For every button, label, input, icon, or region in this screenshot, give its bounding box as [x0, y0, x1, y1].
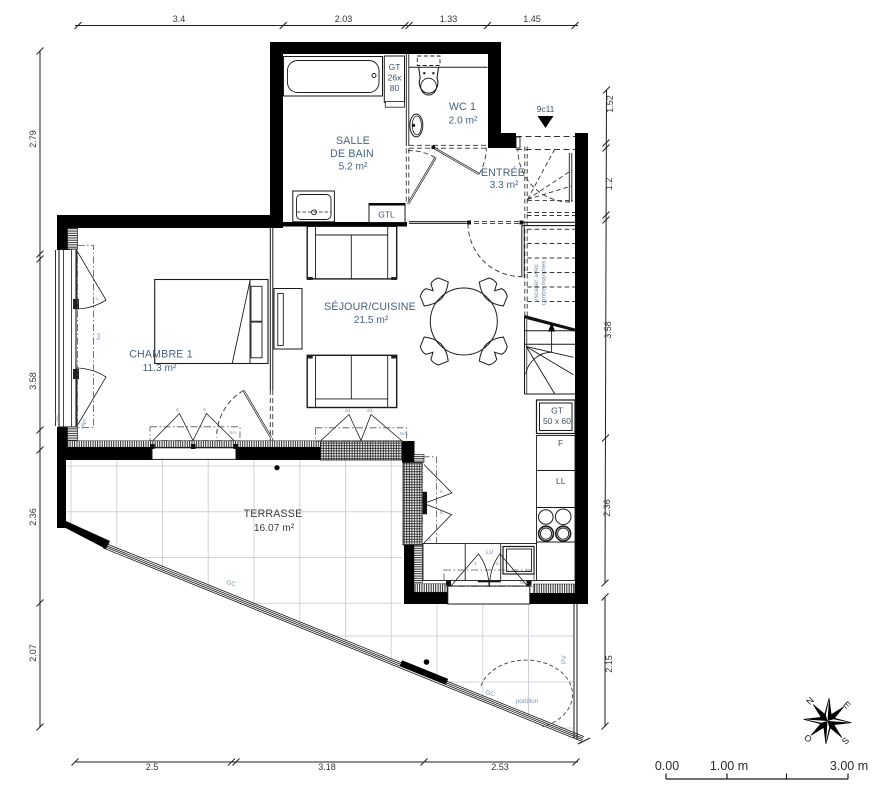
svg-text:26x: 26x — [388, 73, 402, 83]
svg-text:CHAMBRE 1: CHAMBRE 1 — [129, 349, 193, 361]
svg-text:GTL: GTL — [378, 210, 395, 220]
svg-text:ENTRÉE: ENTRÉE — [481, 166, 525, 179]
svg-text:9c11: 9c11 — [537, 104, 555, 114]
svg-text:LL: LL — [556, 476, 566, 486]
svg-text:dd: dd — [367, 408, 373, 413]
svg-text:2.5: 2.5 — [146, 762, 159, 772]
svg-text:1.00 m: 1.00 m — [710, 759, 748, 773]
svg-text:2.15: 2.15 — [604, 655, 614, 673]
svg-text:11.3 m²: 11.3 m² — [143, 363, 177, 374]
svg-text:1.2: 1.2 — [604, 178, 614, 191]
svg-text:GC: GC — [54, 413, 59, 421]
svg-text:16.07 m²: 16.07 m² — [254, 523, 295, 534]
svg-text:80: 80 — [390, 83, 400, 93]
svg-text:WC 1: WC 1 — [449, 101, 476, 113]
svg-text:GT: GT — [389, 62, 401, 72]
svg-text:2.03: 2.03 — [335, 14, 353, 24]
svg-text:2.0 m²: 2.0 m² — [449, 116, 478, 127]
svg-text:3.58: 3.58 — [28, 372, 38, 390]
svg-text:LV: LV — [486, 549, 494, 556]
svg-text:SALLE: SALLE — [336, 135, 370, 147]
svg-text:portillon: portillon — [516, 698, 539, 705]
svg-text:0.00: 0.00 — [655, 759, 679, 773]
svg-text:21.5 m²: 21.5 m² — [354, 315, 389, 326]
svg-text:2.36: 2.36 — [28, 508, 38, 526]
svg-text:DE BAIN: DE BAIN — [330, 148, 374, 160]
svg-text:2.53: 2.53 — [491, 762, 509, 772]
svg-text:N/A: N/A — [520, 580, 528, 585]
svg-text:3.18: 3.18 — [318, 762, 336, 772]
svg-text:PV: PV — [561, 655, 568, 664]
svg-text:5.2 m²: 5.2 m² — [339, 162, 368, 173]
svg-text:1.52: 1.52 — [605, 95, 615, 113]
svg-text:3.3 m²: 3.3 m² — [490, 180, 519, 191]
svg-text:N/A: N/A — [400, 431, 408, 436]
svg-text:F: F — [558, 438, 563, 448]
svg-text:3.4: 3.4 — [173, 14, 186, 24]
svg-text:3.00 m: 3.00 m — [830, 759, 868, 773]
svg-text:VR: VR — [81, 422, 86, 429]
svg-text:2.79: 2.79 — [28, 130, 38, 148]
svg-text:SÉJOUR/CUISINE: SÉJOUR/CUISINE — [324, 300, 416, 313]
svg-text:contre marches: contre marches — [541, 260, 548, 306]
svg-text:50 x 60: 50 x 60 — [543, 416, 571, 426]
svg-text:TERRASSE: TERRASSE — [244, 508, 303, 520]
svg-text:2.07: 2.07 — [28, 644, 38, 662]
svg-text:1.45: 1.45 — [523, 14, 541, 24]
svg-text:GT: GT — [551, 406, 563, 416]
svg-text:2.36: 2.36 — [602, 499, 612, 517]
svg-text:N/A: N/A — [229, 430, 237, 435]
svg-text:dd: dd — [345, 408, 351, 413]
svg-text:escalier avec: escalier avec — [533, 263, 540, 302]
svg-text:fixe: fixe — [96, 333, 101, 341]
svg-text:1.33: 1.33 — [440, 14, 458, 24]
svg-text:3.58: 3.58 — [603, 321, 613, 339]
